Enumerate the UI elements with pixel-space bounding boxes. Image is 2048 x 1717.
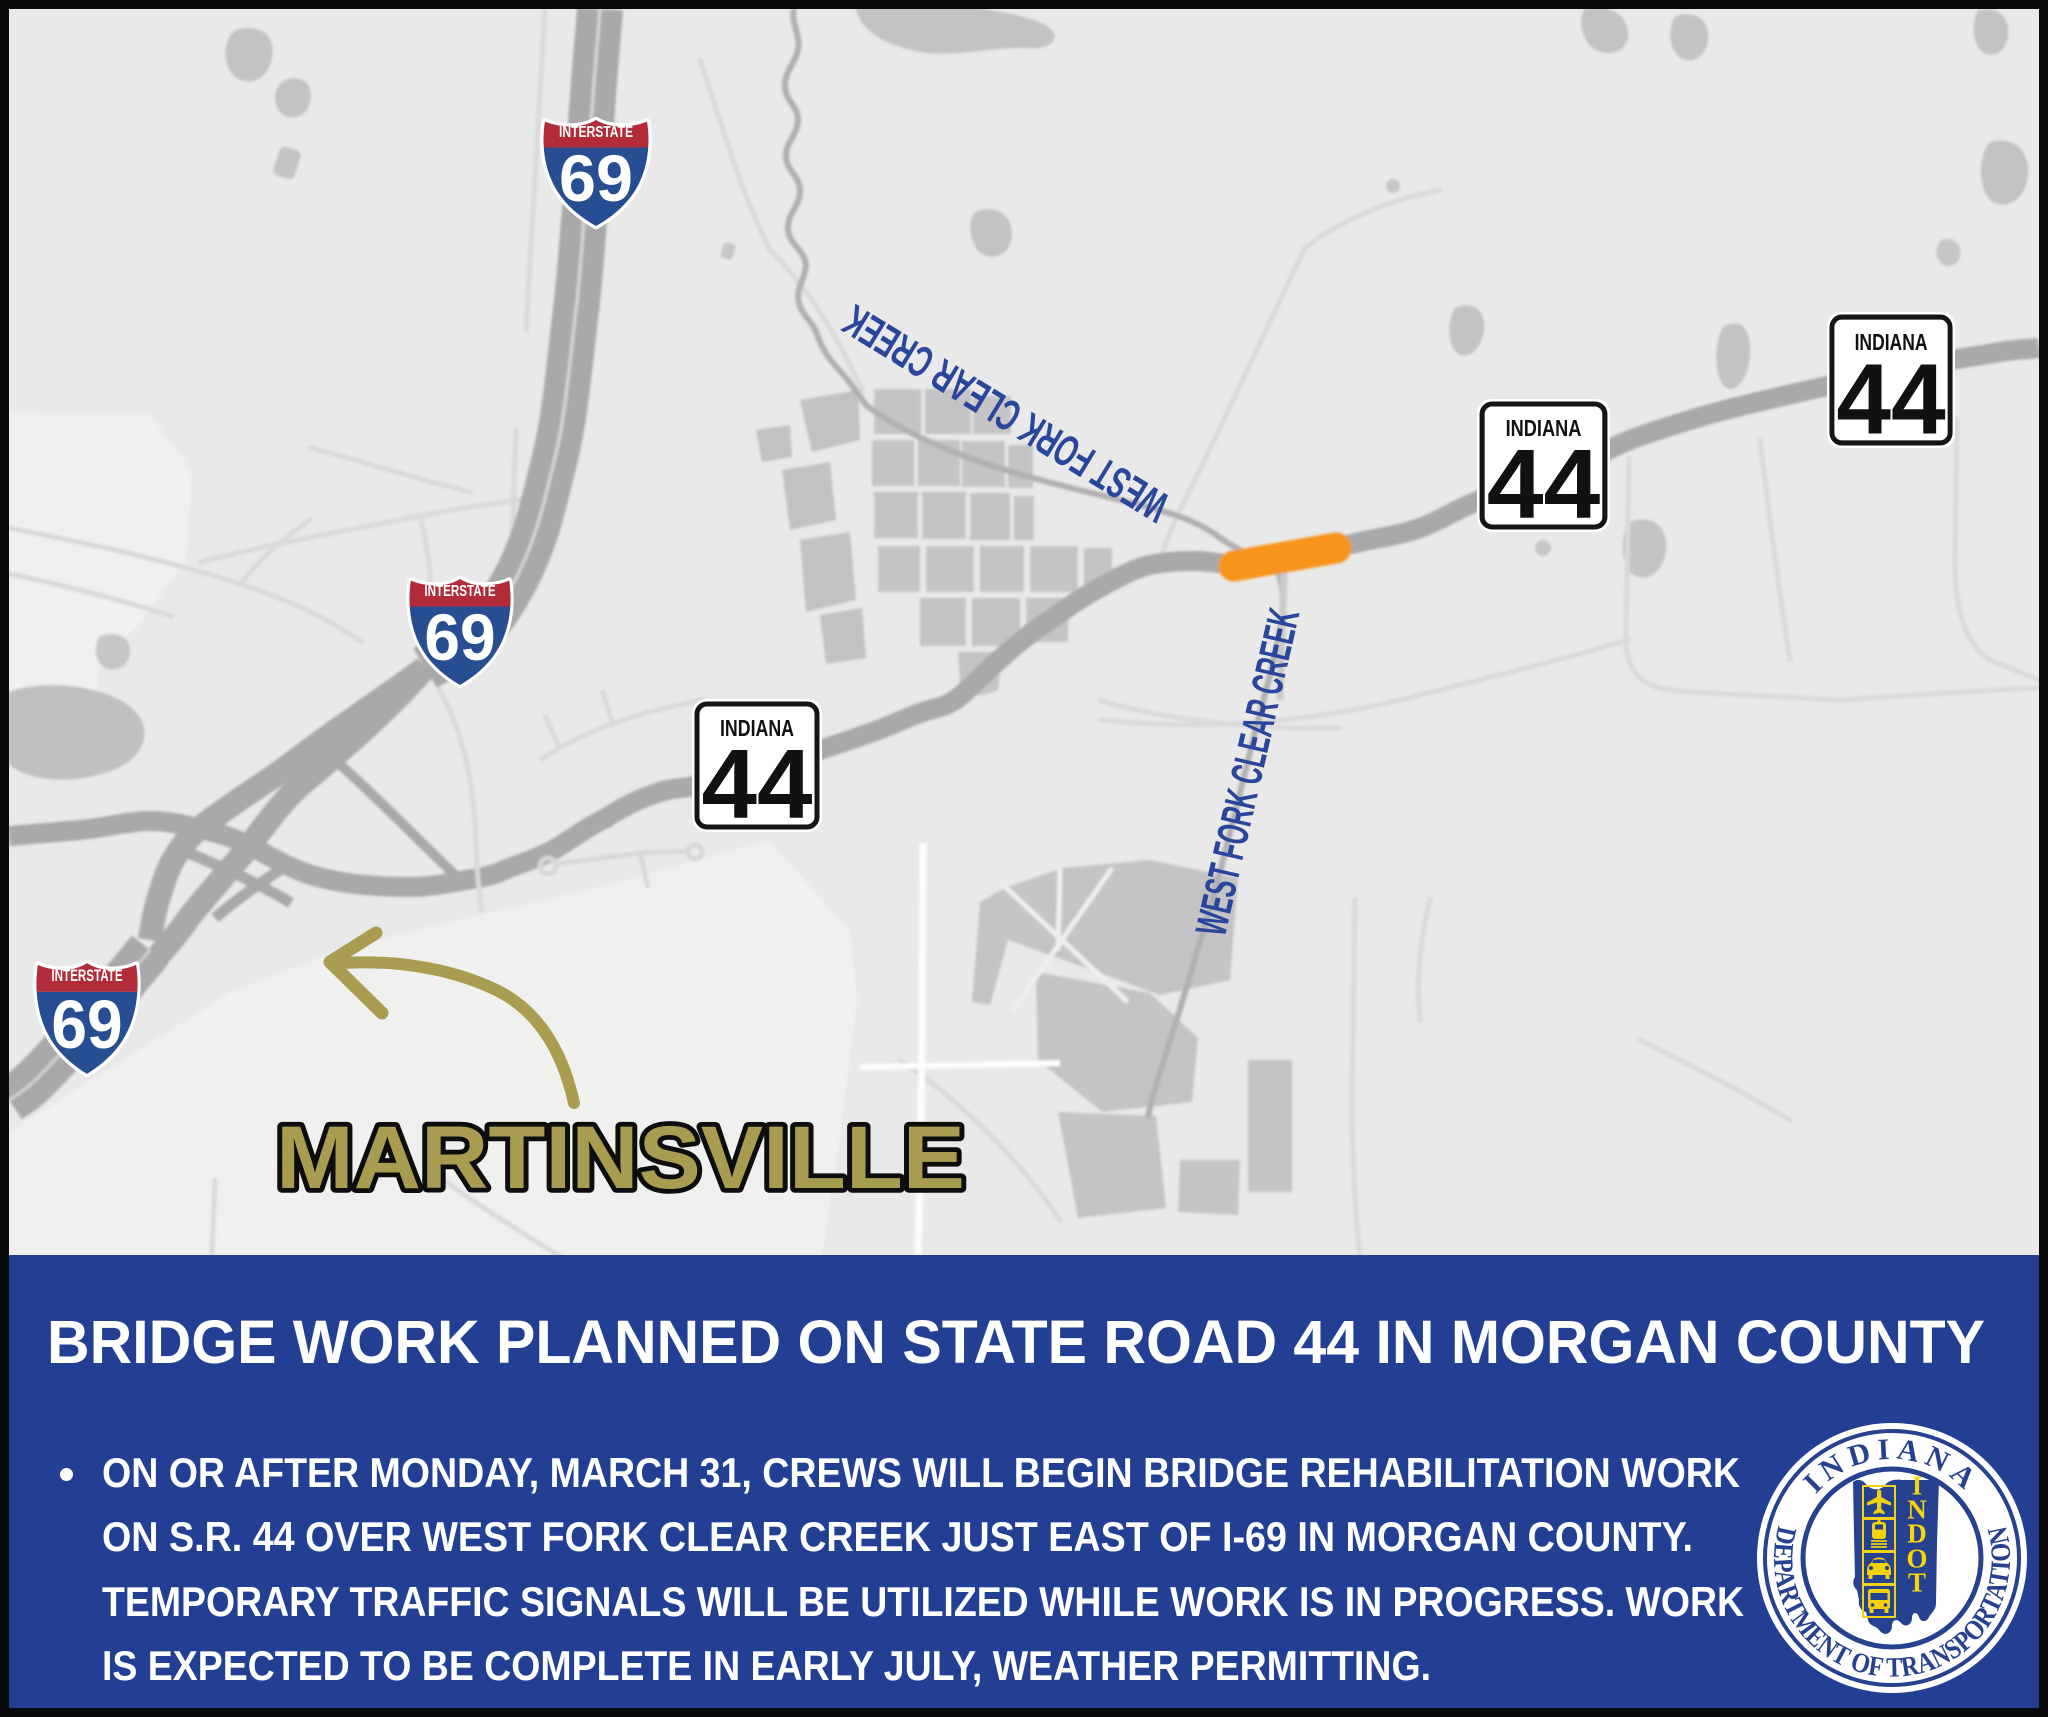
svg-text:IS EXPECTED TO BE COMPLETE IN: IS EXPECTED TO BE COMPLETE IN EARLY JULY… [102, 1642, 1431, 1689]
svg-text:ON OR AFTER MONDAY, MARCH 31,: ON OR AFTER MONDAY, MARCH 31, CREWS WILL… [102, 1449, 1740, 1496]
svg-text:MARTINSVILLE: MARTINSVILLE [276, 1107, 965, 1207]
svg-text:TEMPORARY TRAFFIC SIGNALS WILL: TEMPORARY TRAFFIC SIGNALS WILL BE UTILIZ… [102, 1578, 1744, 1625]
svg-text:T: T [1908, 1568, 1926, 1598]
svg-text:ON S.R. 44 OVER WEST FORK CLEA: ON S.R. 44 OVER WEST FORK CLEAR CREEK JU… [102, 1513, 1693, 1560]
svg-text:BRIDGE WORK PLANNED ON STATE R: BRIDGE WORK PLANNED ON STATE ROAD 44 IN … [47, 1308, 1985, 1376]
